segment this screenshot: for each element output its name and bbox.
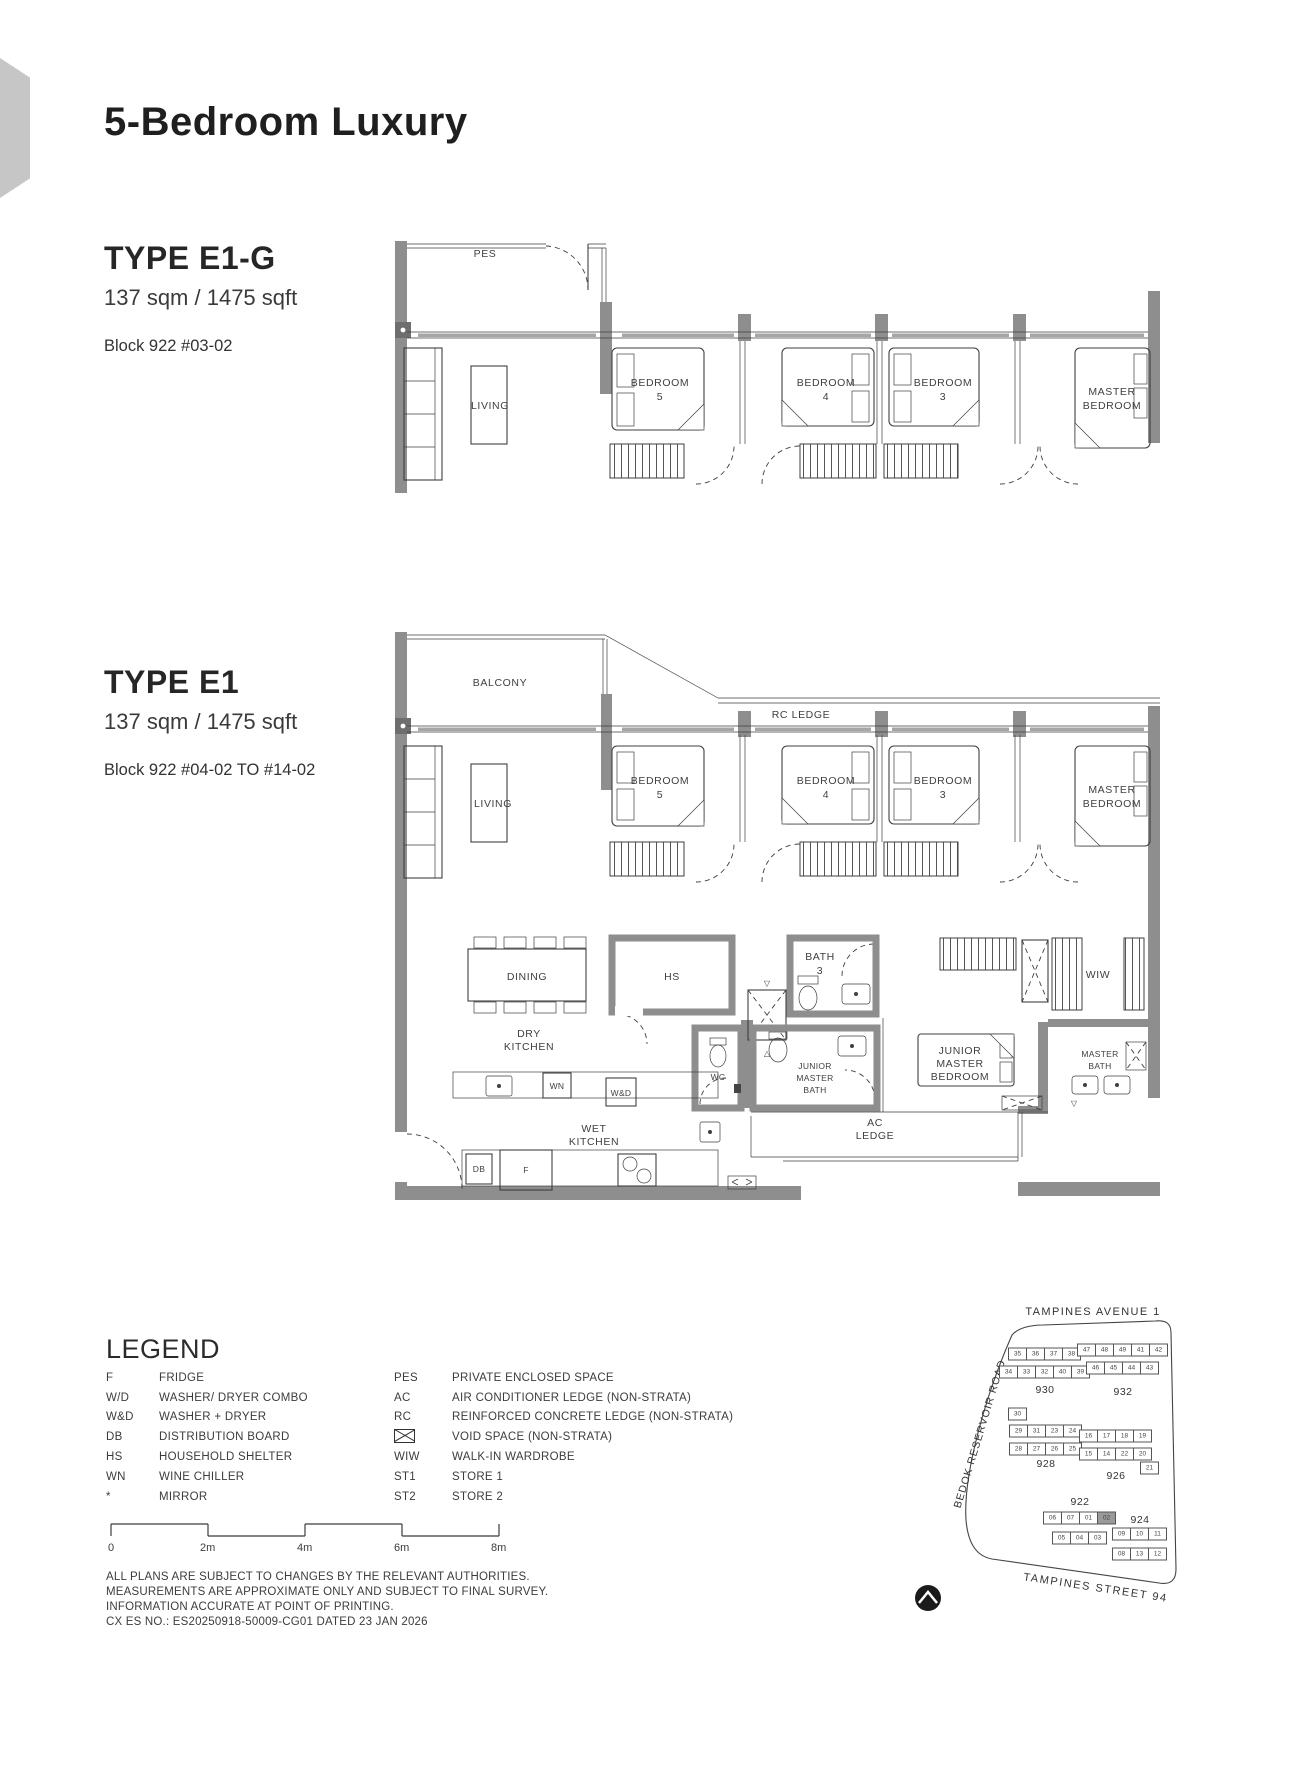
map-unit: 12 (1148, 1548, 1167, 1561)
legend-row: PESPRIVATE ENCLOSED SPACE (394, 1368, 834, 1388)
unit-area-label: 137 sqm / 1475 sqft (104, 285, 297, 311)
map-unit: 49 (1113, 1344, 1132, 1357)
room-label-jm-bath-3: BATH (803, 1085, 826, 1095)
legend-row: ST2STORE 2 (394, 1487, 834, 1507)
map-unit: 20 (1133, 1448, 1152, 1461)
bed-master (1075, 746, 1150, 846)
room-label-bedroom5-num: 5 (657, 789, 663, 801)
map-unit: 26 (1045, 1443, 1064, 1456)
map-unit: 06 (1043, 1512, 1062, 1525)
legend-row: ST1STORE 1 (394, 1467, 834, 1487)
unit-e1-header: TYPE E1 137 sqm / 1475 sqft Block 922 #0… (104, 664, 315, 780)
legend-abbr: HS (106, 1451, 159, 1463)
map-unit-row: 050403 (1053, 1532, 1107, 1545)
map-unit: 28 (1009, 1443, 1028, 1456)
scale-label-0: 0 (108, 1542, 114, 1554)
room-label-wc: WC (711, 1072, 726, 1082)
room-label-wet-kitchen-1: WET (581, 1123, 606, 1135)
disclaimer-line: INFORMATION ACCURATE AT POINT OF PRINTIN… (106, 1600, 548, 1615)
map-unit-row: 29312324 (1010, 1425, 1082, 1438)
map-unit-row: 15142220 (1080, 1448, 1152, 1461)
map-block-label: 924 (1130, 1514, 1149, 1526)
map-unit: 35 (1008, 1348, 1027, 1361)
room-label-ac-ledge-1: AC (867, 1117, 883, 1129)
map-unit: 47 (1077, 1344, 1096, 1357)
map-unit: 46 (1086, 1362, 1105, 1375)
room-label-bedroom5: BEDROOM (631, 775, 689, 787)
map-unit: 41 (1131, 1344, 1150, 1357)
bed-bedroom5 (612, 348, 704, 430)
structure-lines (407, 244, 1148, 444)
legend-abbr: W/D (106, 1392, 159, 1404)
room-label-master-1: MASTER (1088, 784, 1135, 796)
map-unit-row: 46454443 (1087, 1362, 1159, 1375)
map-unit: 44 (1122, 1362, 1141, 1375)
map-unit: 18 (1115, 1430, 1134, 1443)
room-label-ac-ledge-2: LEDGE (856, 1130, 895, 1142)
legend-desc: DISTRIBUTION BOARD (159, 1431, 290, 1443)
master-bath-fixtures: ▽ (1002, 1042, 1146, 1110)
room-label-dry-kitchen-2: KITCHEN (504, 1041, 554, 1053)
scale-label-4m: 4m (297, 1542, 312, 1554)
label-wn: WN (550, 1081, 565, 1091)
map-unit: 17 (1097, 1430, 1116, 1443)
room-label-dining: DINING (507, 971, 547, 983)
legend-abbr: PES (394, 1372, 452, 1384)
room-label-master-bath-2: BATH (1088, 1061, 1111, 1071)
legend-abbr: ST1 (394, 1471, 452, 1483)
unit-type-label: TYPE E1 (104, 664, 315, 701)
room-label-jm-bed-2: MASTER (936, 1058, 983, 1070)
legend-desc: WALK-IN WARDROBE (452, 1451, 575, 1463)
legend-desc: FRIDGE (159, 1372, 204, 1384)
room-label-bedroom5: BEDROOM (631, 377, 689, 389)
map-unit: 34 (999, 1366, 1018, 1379)
legend-desc: REINFORCED CONCRETE LEDGE (NON-STRATA) (452, 1411, 733, 1423)
room-label-bedroom4: BEDROOM (797, 775, 855, 787)
legend-abbr: ST2 (394, 1491, 452, 1503)
map-unit-row: 35363738 (1009, 1348, 1081, 1361)
legend-row: WIWWALK-IN WARDROBE (394, 1447, 834, 1467)
map-unit: 07 (1061, 1512, 1080, 1525)
map-unit: 43 (1140, 1362, 1159, 1375)
map-unit: 48 (1095, 1344, 1114, 1357)
map-unit: 36 (1026, 1348, 1045, 1361)
legend-row: VOID SPACE (NON-STRATA) (394, 1427, 834, 1447)
map-unit-row: 091011 (1113, 1528, 1167, 1541)
room-label-rc-ledge: RC LEDGE (772, 709, 830, 721)
map-unit: 42 (1149, 1344, 1168, 1357)
map-unit: 03 (1088, 1532, 1107, 1545)
room-label-wet-kitchen-2: KITCHEN (569, 1136, 619, 1148)
legend-abbr: AC (394, 1392, 452, 1404)
room-label-bedroom3-num: 3 (940, 789, 946, 801)
map-unit: 27 (1027, 1443, 1046, 1456)
legend-desc: WINE CHILLER (159, 1471, 244, 1483)
map-unit-row: 4748494142 (1078, 1344, 1168, 1357)
map-unit-row: 16171819 (1080, 1430, 1152, 1443)
room-label-balcony: BALCONY (473, 677, 527, 689)
unit-area-label: 137 sqm / 1475 sqft (104, 709, 315, 735)
legend-desc: PRIVATE ENCLOSED SPACE (452, 1372, 614, 1384)
void-space-icon (394, 1429, 452, 1446)
map-unit: 21 (1140, 1462, 1159, 1475)
disclaimer-line: ALL PLANS ARE SUBJECT TO CHANGES BY THE … (106, 1570, 548, 1585)
sofa (404, 746, 442, 878)
legend-row: *MIRROR (106, 1487, 406, 1507)
map-unit: 08 (1112, 1548, 1131, 1561)
room-label-bedroom3: BEDROOM (914, 775, 972, 787)
legend-row: RCREINFORCED CONCRETE LEDGE (NON-STRATA) (394, 1408, 834, 1428)
room-label-bedroom4-num: 4 (823, 391, 829, 403)
room-label-jm-bed-3: BEDROOM (931, 1071, 989, 1083)
map-unit-row: 3433324039 (1000, 1366, 1090, 1379)
room-label-jm-bed-1: JUNIOR (939, 1045, 982, 1057)
legend-desc: WASHER/ DRYER COMBO (159, 1392, 308, 1404)
map-unit: 16 (1079, 1430, 1098, 1443)
room-label-jm-bath-2: MASTER (796, 1073, 833, 1083)
map-unit-row: 081312 (1113, 1548, 1167, 1561)
map-unit: 31 (1027, 1425, 1046, 1438)
legend-abbr: W&D (106, 1411, 159, 1423)
legend-desc: AIR CONDITIONER LEDGE (NON-STRATA) (452, 1392, 691, 1404)
svg-text:▽: ▽ (764, 979, 771, 988)
legend-row: W&DWASHER + DRYER (106, 1408, 406, 1428)
page-corner-tab (0, 58, 30, 198)
room-label-wiw: WIW (1086, 969, 1111, 981)
map-unit: 37 (1044, 1348, 1063, 1361)
room-label-bedroom5-num: 5 (657, 391, 663, 403)
map-unit: 14 (1097, 1448, 1116, 1461)
map-block-label: 930 (1035, 1384, 1054, 1396)
map-unit: 04 (1070, 1532, 1089, 1545)
unit-type-label: TYPE E1-G (104, 240, 297, 277)
room-label-master-2: BEDROOM (1083, 400, 1141, 412)
map-unit: 22 (1115, 1448, 1134, 1461)
site-map: TAMPINES AVENUE 1 BEDOK RESERVOIR ROAD T… (840, 1278, 1300, 1638)
map-unit: 05 (1052, 1532, 1071, 1545)
scale-bar: 0 2m 4m 6m 8m (104, 1514, 524, 1558)
map-block-label: 932 (1113, 1386, 1132, 1398)
label-db: DB (473, 1164, 485, 1174)
floorplan-e1g: PES LIVING BEDROOM 5 BEDROOM 4 BEDROOM 3… (338, 196, 1168, 496)
map-unit: 23 (1045, 1425, 1064, 1438)
floorplan-e1: ▽ △ ▽ (338, 556, 1178, 1216)
map-unit: 45 (1104, 1362, 1123, 1375)
legend-abbr: RC (394, 1411, 452, 1423)
room-label-living: LIVING (471, 400, 509, 412)
map-unit: 15 (1079, 1448, 1098, 1461)
door-arcs (617, 844, 1078, 1104)
room-label-bedroom4-num: 4 (823, 789, 829, 801)
map-unit: 10 (1130, 1528, 1149, 1541)
map-unit: 29 (1009, 1425, 1028, 1438)
room-label-dry-kitchen-1: DRY (517, 1028, 541, 1040)
wardrobes (610, 444, 958, 478)
legend-heading: LEGEND (106, 1334, 220, 1365)
map-unit-row: 21 (1141, 1462, 1159, 1475)
unit-e1g-header: TYPE E1-G 137 sqm / 1475 sqft Block 922 … (104, 240, 297, 356)
label-wd: W&D (611, 1088, 632, 1098)
room-label-master-bath-1: MASTER (1081, 1049, 1118, 1059)
map-unit: 01 (1079, 1512, 1098, 1525)
scale-label-6m: 6m (394, 1542, 409, 1554)
room-label-bedroom4: BEDROOM (797, 377, 855, 389)
room-label-bedroom3: BEDROOM (914, 377, 972, 389)
map-unit: 32 (1035, 1366, 1054, 1379)
disclaimer-line: CX ES NO.: ES20250918-50009-CG01 DATED 2… (106, 1615, 548, 1630)
legend-row: W/DWASHER/ DRYER COMBO (106, 1388, 406, 1408)
map-unit-row: 06070102 (1044, 1512, 1116, 1525)
legend-row: FFRIDGE (106, 1368, 406, 1388)
svg-text:▽: ▽ (1071, 1099, 1078, 1108)
legend-desc: WASHER + DRYER (159, 1411, 266, 1423)
svg-text:△: △ (764, 1049, 771, 1058)
walls (395, 241, 1160, 493)
scale-label-2m: 2m (200, 1542, 215, 1554)
map-unit-row: 30 (1009, 1408, 1027, 1421)
legend-abbr: DB (106, 1431, 159, 1443)
legend-desc: MIRROR (159, 1491, 207, 1503)
map-unit: 40 (1053, 1366, 1072, 1379)
legend-column-left: FFRIDGEW/DWASHER/ DRYER COMBOW&DWASHER +… (106, 1368, 406, 1507)
map-unit: 33 (1017, 1366, 1036, 1379)
legend-abbr: F (106, 1372, 159, 1384)
legend-row: HSHOUSEHOLD SHELTER (106, 1447, 406, 1467)
room-label-master-1: MASTER (1088, 386, 1135, 398)
page-title: 5-Bedroom Luxury (104, 100, 468, 145)
void-shaft-2 (1022, 940, 1048, 1002)
bath3-room (790, 938, 876, 1014)
map-unit: 19 (1133, 1430, 1152, 1443)
room-label-living: LIVING (474, 798, 512, 810)
map-unit: 13 (1130, 1548, 1149, 1561)
site-map-blocks: 9303536373834333240399324748494142464544… (840, 1278, 1300, 1638)
legend-abbr: WIW (394, 1451, 452, 1463)
legend-row: WNWINE CHILLER (106, 1467, 406, 1487)
room-label-bath3-1: BATH (805, 951, 835, 963)
map-block-label: 922 (1070, 1496, 1089, 1508)
legend-desc: STORE 1 (452, 1471, 503, 1483)
sofa (404, 348, 442, 480)
map-unit: 30 (1008, 1408, 1027, 1421)
disclaimer-line: MEASUREMENTS ARE APPROXIMATE ONLY AND SU… (106, 1585, 548, 1600)
map-unit: 09 (1112, 1528, 1131, 1541)
legend-desc: VOID SPACE (NON-STRATA) (452, 1431, 612, 1443)
label-fridge: F (523, 1165, 529, 1175)
map-block-label: 926 (1106, 1470, 1125, 1482)
map-unit: 11 (1148, 1528, 1167, 1541)
bed-master (1075, 348, 1150, 448)
map-unit-highlighted: 02 (1097, 1512, 1116, 1525)
room-label-master-2: BEDROOM (1083, 798, 1141, 810)
legend-desc: HOUSEHOLD SHELTER (159, 1451, 292, 1463)
room-label-pes: PES (474, 248, 497, 260)
legend-abbr: * (106, 1491, 159, 1503)
unit-block-label: Block 922 #04-02 TO #14-02 (104, 761, 315, 780)
room-label-bedroom3-num: 3 (940, 391, 946, 403)
legend-abbr: WN (106, 1471, 159, 1483)
map-block-label: 928 (1036, 1458, 1055, 1470)
scale-label-8m: 8m (491, 1542, 506, 1554)
room-label-hs: HS (664, 971, 680, 983)
legend-row: DBDISTRIBUTION BOARD (106, 1427, 406, 1447)
floorplan-page: 5-Bedroom Luxury TYPE E1-G 137 sqm / 147… (0, 0, 1300, 1772)
disclaimer: ALL PLANS ARE SUBJECT TO CHANGES BY THE … (106, 1570, 548, 1630)
legend-column-right: PESPRIVATE ENCLOSED SPACEACAIR CONDITION… (394, 1368, 834, 1507)
unit-block-label: Block 922 #03-02 (104, 337, 297, 356)
room-label-jm-bath-1: JUNIOR (798, 1061, 831, 1071)
legend-row: ACAIR CONDITIONER LEDGE (NON-STRATA) (394, 1388, 834, 1408)
legend-desc: STORE 2 (452, 1491, 503, 1503)
room-label-bath3-2: 3 (817, 965, 823, 977)
map-unit-row: 28272625 (1010, 1443, 1082, 1456)
